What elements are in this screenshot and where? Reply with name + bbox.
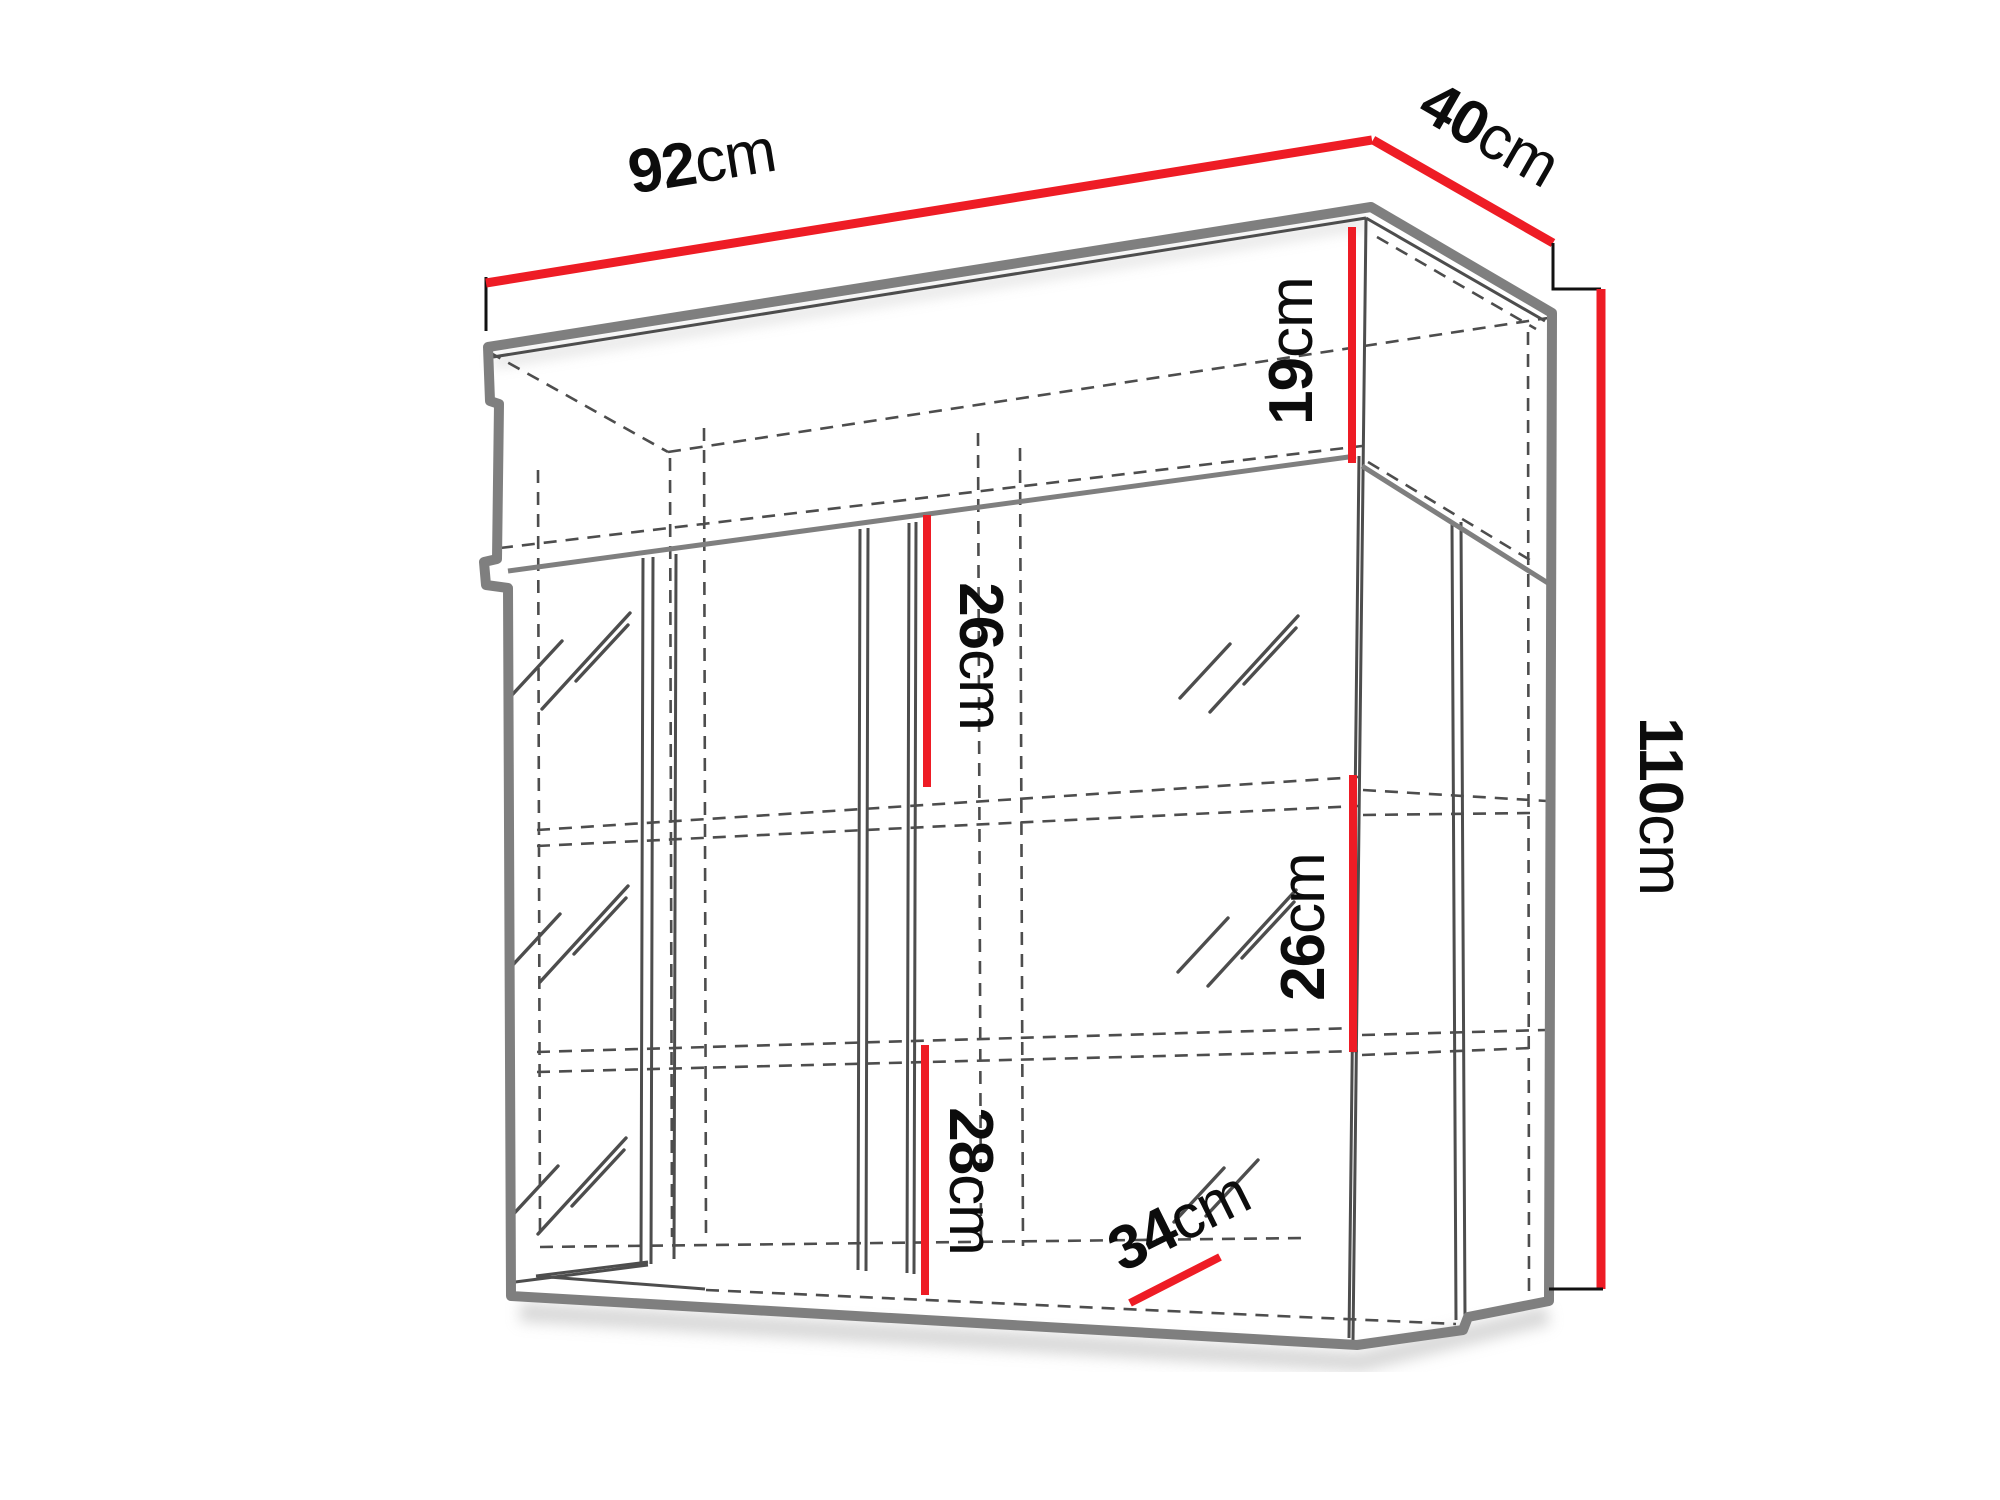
bottom-shelf-label: 28cm — [936, 1107, 1005, 1255]
right-shelf-label: 26cm — [1269, 853, 1338, 1001]
depth-end-tick — [1553, 243, 1601, 289]
dimension-top-shelf: 19cm — [1257, 227, 1352, 463]
middle-shelf-label: 26cm — [946, 582, 1015, 730]
width-dimension-line — [486, 140, 1372, 283]
top-shelf-label: 19cm — [1257, 277, 1326, 425]
dimension-right-shelf: 26cm — [1269, 775, 1353, 1052]
cabinet-hidden-edges — [489, 237, 1548, 1324]
cabinet-outer-frame — [484, 207, 1552, 1345]
width-label: 92cm — [623, 116, 780, 208]
interior-depth-label: 34cm — [1097, 1158, 1260, 1286]
glass-hatch-marks — [508, 613, 1298, 1234]
dimension-middle-shelf: 26cm — [927, 515, 1015, 787]
dimension-interior-depth: 34cm — [1097, 1158, 1260, 1303]
height-label: 110cm — [1626, 717, 1695, 895]
diagram-stage: 92cm 40cm 110cm 19cm 26cm 26cm 28cm — [0, 0, 2000, 1500]
dimension-depth: 40cm — [1373, 68, 1601, 289]
cabinet-wireframe — [484, 207, 1552, 1345]
dimension-bottom-shelf: 28cm — [925, 1045, 1005, 1295]
depth-label: 40cm — [1408, 68, 1570, 201]
furniture-dimension-diagram: 92cm 40cm 110cm 19cm 26cm 26cm 28cm — [0, 0, 2000, 1500]
top-edge-shadow — [493, 223, 1366, 362]
dimension-height: 110cm — [1549, 289, 1695, 1289]
